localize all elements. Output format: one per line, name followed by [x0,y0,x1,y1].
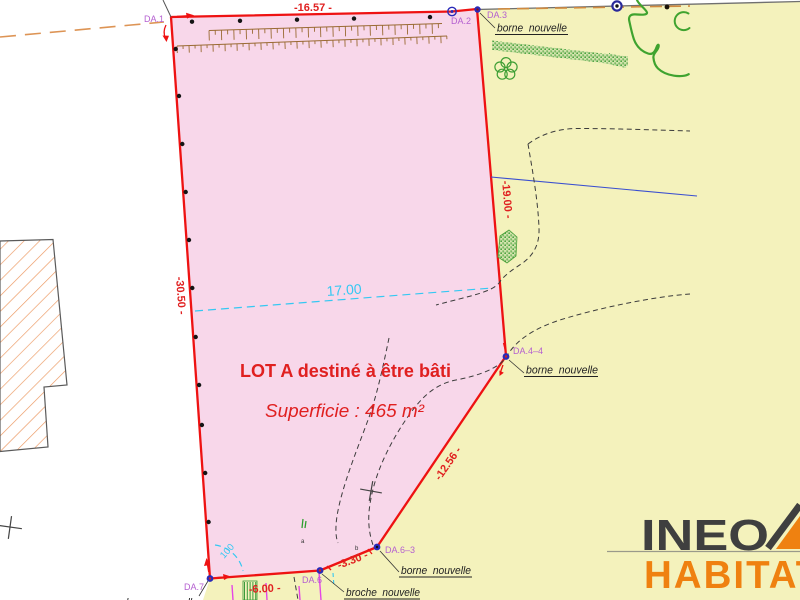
svg-text:-16.57 -: -16.57 - [294,2,332,14]
svg-text:INEO: INEO [641,511,769,560]
svg-text:Superficie : 465 m²: Superficie : 465 m² [265,401,425,421]
svg-text:LOT A destiné à être bâti: LOT A destiné à être bâti [240,361,451,381]
svg-text:DA.2: DA.2 [451,16,471,26]
svg-text:borne nouvelle: borne nouvelle [497,23,567,35]
svg-text:borne nouvelle: borne nouvelle [401,565,471,577]
svg-text:broche nouvelle: broche nouvelle [346,587,420,599]
svg-text:DA.6–3: DA.6–3 [385,545,415,555]
svg-text:DA.1: DA.1 [144,14,164,24]
svg-text:DA.3: DA.3 [487,10,507,20]
svg-text:DA.4–4: DA.4–4 [513,346,543,356]
svg-text:-6.00 -: -6.00 - [249,582,282,596]
svg-text:borne nouvelle: borne nouvelle [526,365,598,377]
svg-text:DA.7: DA.7 [184,582,204,592]
svg-text:HABITAT: HABITAT [644,554,800,597]
svg-text:DA.6: DA.6 [302,575,322,585]
svg-text:17.00: 17.00 [326,281,362,299]
